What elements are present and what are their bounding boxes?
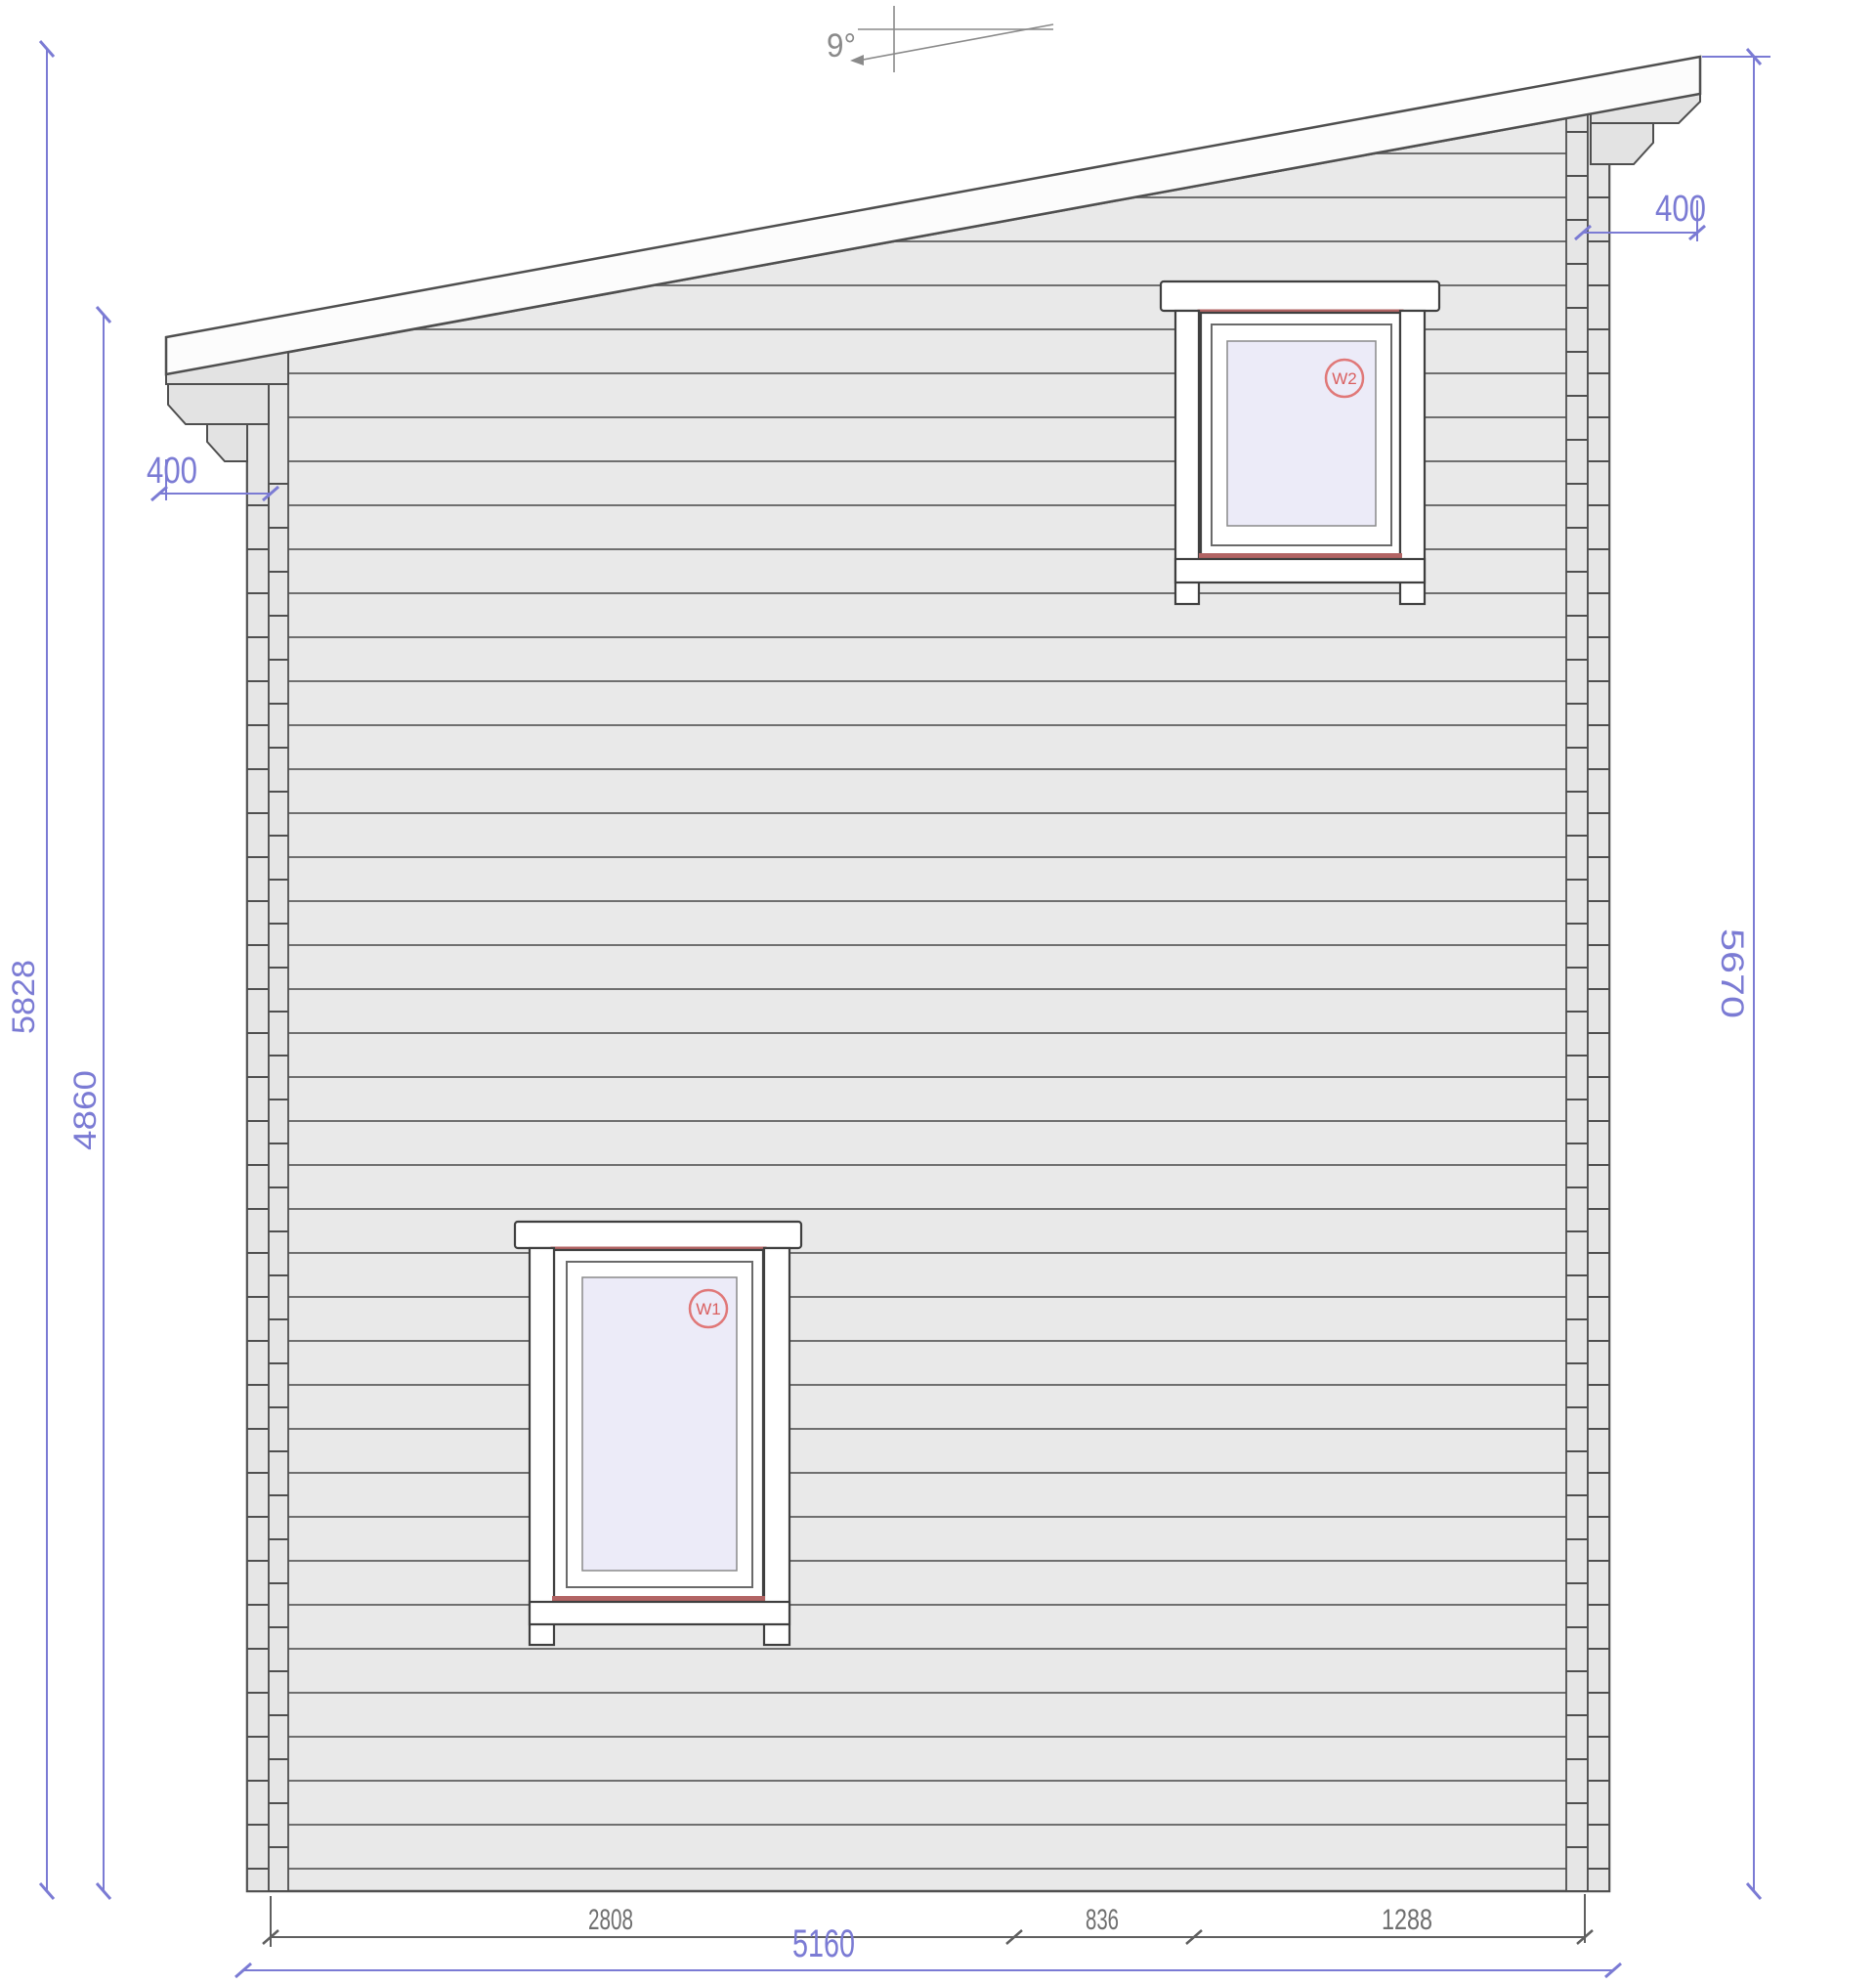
elevation-drawing-canvas: W1 W2 9° 5828 4860 5670 400 400 2808 836… [0, 0, 1876, 1984]
left-eave-bracket [207, 424, 247, 461]
window-w1: W1 [515, 1222, 801, 1645]
window-w2: W2 [1161, 281, 1439, 604]
w2-sill-board [1175, 559, 1425, 582]
left-corner-post-inner [269, 353, 288, 1891]
dim-right-wall-height: 5670 [1715, 928, 1750, 1018]
dim-bottom-segment-3: 1288 [1382, 1904, 1432, 1936]
roof-angle-label: 9° [827, 27, 856, 65]
w1-glass [582, 1277, 737, 1571]
elevation-svg: W1 W2 9° 5828 4860 5670 400 400 2808 836… [0, 0, 1876, 1984]
dim-left-wall-height: 4860 [67, 1070, 103, 1150]
dim-bottom-segment-2: 836 [1086, 1904, 1119, 1936]
dim-left-overhang: 400 [147, 451, 197, 492]
w1-trim-left [530, 1248, 554, 1645]
w1-badge-label: W1 [696, 1300, 721, 1318]
dim-bottom-segment-1: 2808 [588, 1904, 633, 1936]
right-corner-post-outer [1588, 110, 1609, 1891]
w1-header-board [515, 1222, 801, 1248]
right-eave-bracket [1591, 123, 1653, 164]
w2-header-board [1161, 281, 1439, 311]
w1-trim-right [764, 1248, 789, 1645]
dim-total-height: 5828 [6, 960, 41, 1034]
w2-badge-label: W2 [1332, 369, 1357, 388]
dim-total-width: 5160 [792, 1922, 855, 1965]
left-eave-fascia [168, 384, 269, 424]
roof-angle-annotation: 9° [827, 6, 1053, 72]
right-corner-post-inner [1566, 110, 1588, 1891]
dim-right-overhang: 400 [1655, 189, 1706, 230]
w1-sill-board [530, 1602, 789, 1624]
